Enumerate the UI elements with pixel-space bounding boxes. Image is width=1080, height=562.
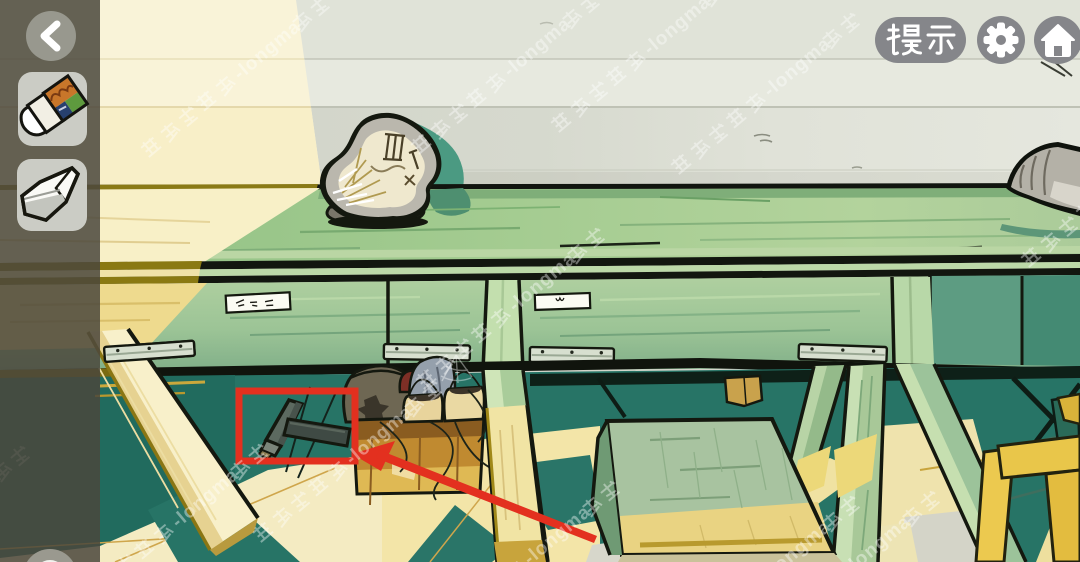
svg-text:-longma: -longma [500,13,575,81]
svg-text:-longma: -longma [230,16,305,84]
svg-text:-longma: -longma [760,33,835,101]
svg-text:-longma: -longma [520,501,595,562]
svg-text:-longma: -longma [640,0,715,59]
svg-text:-longma: -longma [840,511,915,562]
svg-text:-longma: -longma [505,248,580,316]
svg-text:-longma: -longma [760,516,835,562]
svg-text:-longma: -longma [342,401,417,469]
svg-text:-longma: -longma [168,464,243,532]
